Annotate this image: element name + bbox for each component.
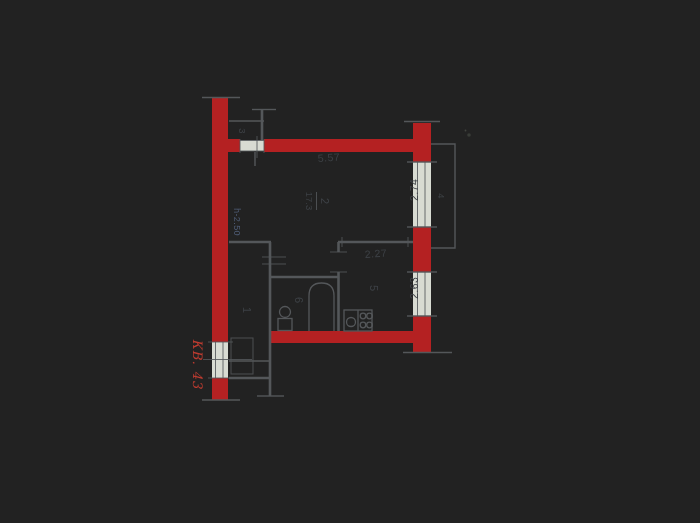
right-wall-middle [413,227,431,272]
top-wall-door-opening [240,140,264,151]
room-number-hall: 1 [241,307,253,313]
ink-smudge-mark [465,130,471,137]
floor-plan-drawing: 5.57 2.74 2.27 2.63 2 17.3 1 3 4 5 6 h-2… [0,0,700,523]
left-wall-lower [212,378,228,400]
toilet-bowl [278,319,292,331]
closet-room-outline [229,110,276,167]
room-label-living: 2 17.3 [304,192,331,211]
room-number-closet: 3 [237,128,248,133]
toilet-tank [280,307,291,318]
room-number-kitchen: 5 [368,285,380,291]
dim-living-window: 2.74 [408,179,420,201]
stove-burner [360,322,366,328]
apartment-number-note: КВ. 43 [190,339,205,390]
labels-layer: 5.57 2.74 2.27 2.63 2 17.3 1 3 4 5 6 h-2… [190,128,447,390]
kitchen-sink [347,318,356,327]
walls-layer [212,98,431,400]
room-number-living: 2 [319,198,331,204]
room-area-living: 17.3 [304,192,315,211]
window-symbols [203,162,437,378]
right-wall-top [413,123,431,162]
ceiling-height-note: h-2.50 [232,208,242,236]
left-wall-upper [212,98,228,342]
room-number-bathroom: 6 [293,297,305,303]
dim-living-width: 5.57 [317,150,340,164]
top-wall-left-segment [228,139,240,152]
stove-burner [360,313,366,319]
floor-plan-photo: 5.57 2.74 2.27 2.63 2 17.3 1 3 4 5 6 h-2… [0,0,700,523]
room-number-balcony: 4 [436,193,447,198]
bottom-wall [271,331,431,343]
fixtures [278,283,372,331]
dim-kitchen-window: 2.63 [408,277,420,299]
dim-kitchen-width: 2.27 [364,246,387,260]
interior-partitions [229,136,413,396]
hall-closet [231,338,253,374]
bathtub [309,283,334,331]
